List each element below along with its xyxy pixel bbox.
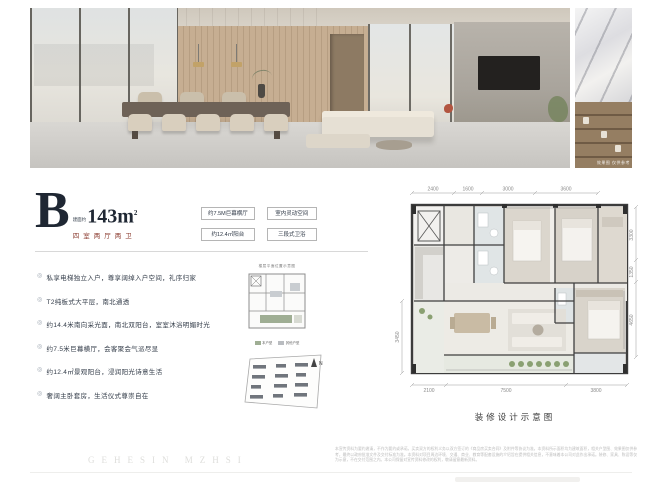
plant bbox=[548, 96, 568, 122]
footer-divider bbox=[30, 472, 632, 473]
dining-chair bbox=[230, 114, 254, 131]
list-item: ◎T2纯板式大平层，南北通透 bbox=[37, 296, 237, 306]
dim-label: 7500 bbox=[500, 388, 511, 394]
tag-bath: 三段式卫浴 bbox=[267, 228, 317, 241]
legal-disclaimer: 本宣传资料为要约邀请，不作为要约或承诺，买卖双方的权利义务以双方签订的《商品房买… bbox=[335, 447, 637, 464]
unit-area: 建面约 143m2 bbox=[73, 204, 138, 226]
brochure-page: 效果图 仅供参考 B 建面约 143m2 四室两厅两卫 约7.5M巨幕横厅 室内… bbox=[0, 0, 660, 495]
list-item: ◎奢阔主卧套房，生活仪式尊崇自在 bbox=[37, 390, 237, 400]
selling-points-list: ◎私享电梯独立入户，尊享阔绰入户空间，礼序归家 ◎T2纯板式大平层，南北通透 ◎… bbox=[37, 272, 237, 413]
bullet-icon: ◎ bbox=[37, 272, 43, 280]
footer-logo-placeholder bbox=[455, 477, 580, 482]
legend-swatch-self bbox=[255, 341, 261, 345]
dining-chair bbox=[264, 114, 288, 131]
shelf-object bbox=[583, 117, 589, 124]
pendant-light bbox=[198, 44, 199, 64]
site-plan: N bbox=[243, 352, 327, 417]
list-item: ◎约12.4㎡景观阳台，浸润阳光诗意生活 bbox=[37, 366, 237, 376]
dim-label: 3600 bbox=[560, 187, 571, 193]
bullet-icon: ◎ bbox=[37, 366, 43, 374]
shelf-object bbox=[615, 145, 621, 152]
key-plan-legend: 本户型 其他户型 bbox=[246, 340, 308, 345]
floor-plan-drawing: 2400 1600 3000 3600 3300 1350 4650 3450 bbox=[392, 183, 644, 419]
interior-photo bbox=[30, 8, 570, 168]
dining-chair bbox=[196, 114, 220, 131]
area-superscript: 2 bbox=[134, 209, 138, 217]
north-label: N bbox=[319, 361, 323, 367]
tag-hall: 约7.5M巨幕横厅 bbox=[201, 207, 255, 220]
shelf-object bbox=[601, 131, 607, 138]
dim-label: 2100 bbox=[423, 388, 434, 394]
bullet-icon: ◎ bbox=[37, 343, 43, 351]
section-divider bbox=[35, 251, 368, 252]
legend-swatch-other bbox=[278, 341, 284, 345]
brand-watermark: GEHESIN MZHSI bbox=[88, 455, 248, 465]
tag-balcony: 约12.4㎡阳台 bbox=[201, 228, 255, 241]
dim-label: 2400 bbox=[427, 187, 438, 193]
key-plan-title: 楼层平面位置示意图 bbox=[246, 264, 308, 269]
photo-floor bbox=[30, 122, 570, 168]
chaise-lounge bbox=[306, 134, 370, 148]
vase bbox=[258, 84, 265, 98]
area-label: 建面约 bbox=[73, 217, 87, 223]
dim-label: 1350 bbox=[629, 266, 635, 277]
detail-photo: 效果图 仅供参考 bbox=[575, 8, 632, 168]
legend-item: 本户型 bbox=[255, 340, 273, 345]
pendant-light bbox=[236, 44, 237, 64]
dim-label: 1600 bbox=[462, 187, 473, 193]
photo-caption: 效果图 仅供参考 bbox=[597, 160, 630, 166]
dim-label: 3000 bbox=[502, 187, 513, 193]
legend-item: 其他户型 bbox=[278, 340, 299, 345]
site-plan-drawing: N bbox=[243, 352, 327, 412]
photo-tv bbox=[478, 56, 540, 90]
feature-tags: 约7.5M巨幕横厅 室内灵动空间 约12.4㎡阳台 三段式卫浴 bbox=[201, 207, 317, 241]
unit-layout: 四室两厅两卫 bbox=[73, 230, 138, 240]
floor-plan-caption: 装修设计示意图 bbox=[440, 411, 590, 423]
dim-label: 3450 bbox=[395, 331, 401, 342]
dim-label: 3300 bbox=[629, 229, 635, 240]
dim-label: 3800 bbox=[590, 388, 601, 394]
unit-letter: B bbox=[35, 188, 70, 234]
unit-title-block: B 建面约 143m2 四室两厅两卫 bbox=[35, 188, 137, 240]
dining-chair bbox=[162, 114, 186, 131]
tag-space: 室内灵动空间 bbox=[267, 207, 317, 220]
marble-panel bbox=[575, 8, 632, 104]
list-item: ◎私享电梯独立入户，尊享阔绰入户空间，礼序归家 bbox=[37, 272, 237, 282]
list-item: ◎约7.5米巨幕横厅，会客聚会气派尽显 bbox=[37, 343, 237, 353]
dining-chair bbox=[128, 114, 152, 131]
coffee-table bbox=[376, 140, 412, 150]
dim-label: 4650 bbox=[629, 314, 635, 325]
bullet-icon: ◎ bbox=[37, 390, 43, 398]
key-plan-drawing bbox=[246, 271, 308, 333]
area-value: 143m2 bbox=[87, 204, 137, 226]
floor-key-plan: 楼层平面位置示意图 本户型 其他户型 bbox=[246, 264, 308, 345]
bullet-icon: ◎ bbox=[37, 319, 43, 327]
flower-accent bbox=[444, 104, 453, 113]
bullet-icon: ◎ bbox=[37, 296, 43, 304]
list-item: ◎约14.4米南向采光面，南北双阳台，室室沐浴明媚时光 bbox=[37, 319, 237, 329]
